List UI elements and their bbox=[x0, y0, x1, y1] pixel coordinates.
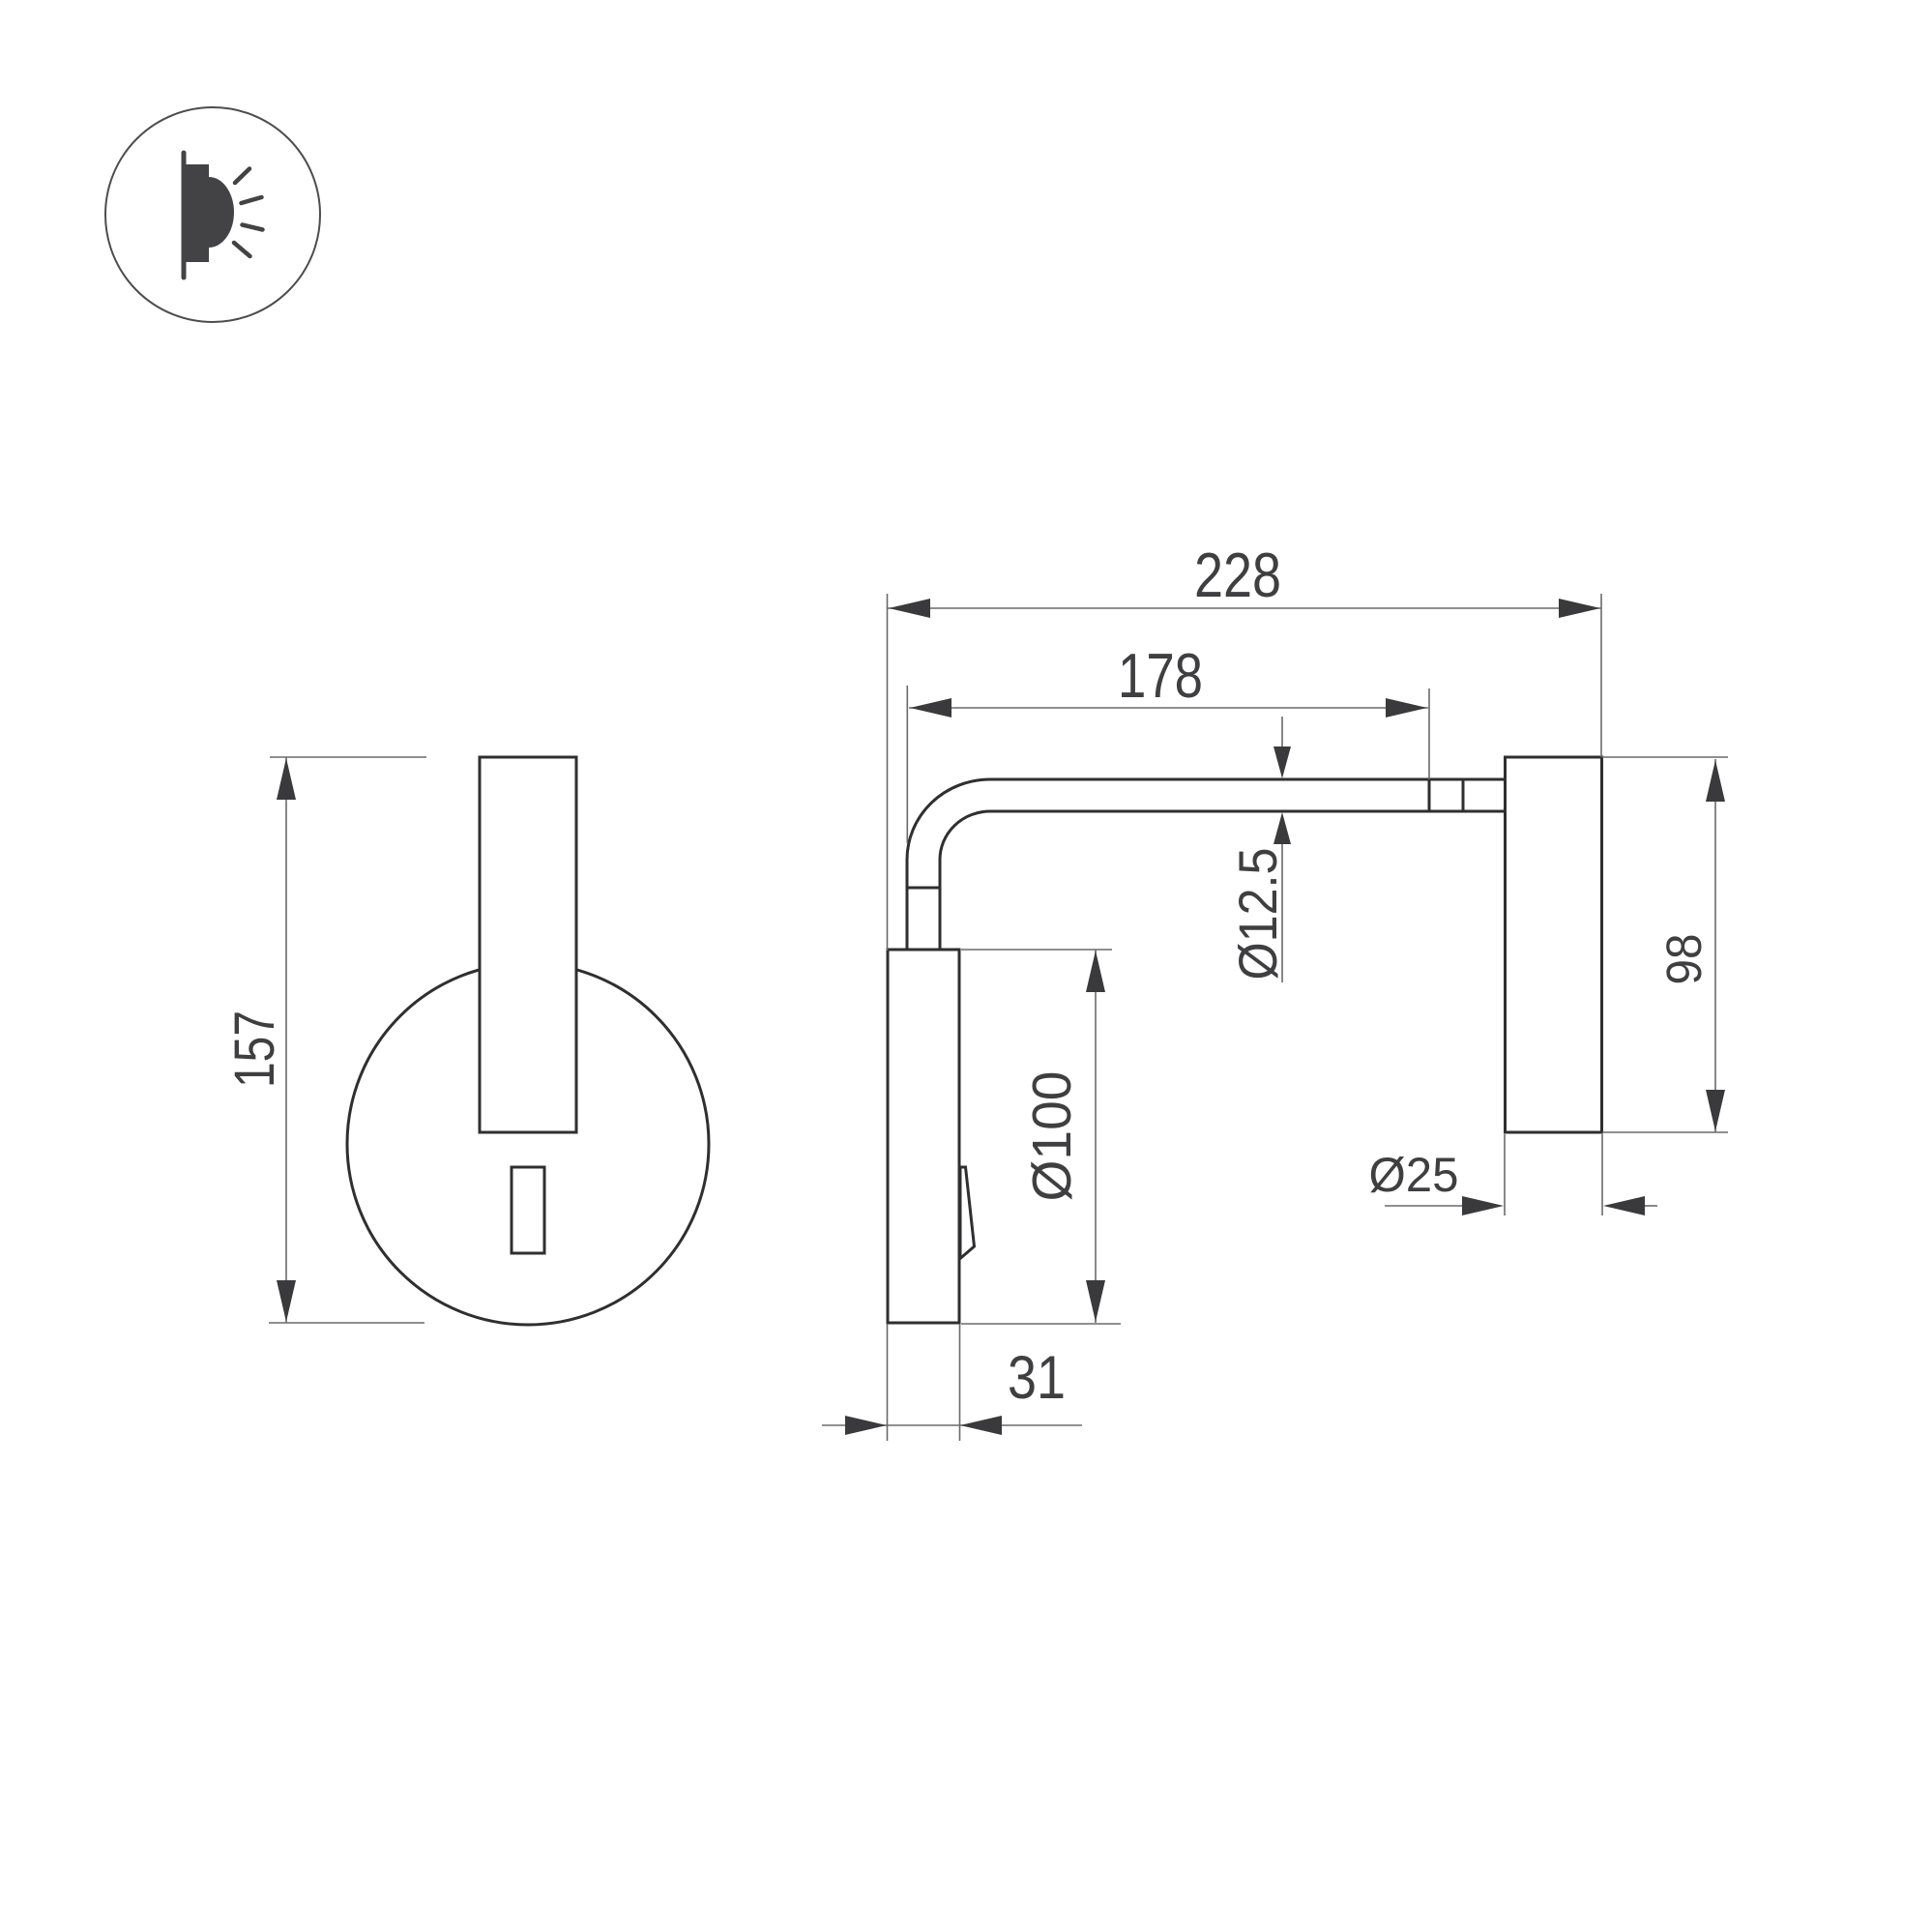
svg-text:98: 98 bbox=[1656, 934, 1712, 985]
svg-text:Ø12.5: Ø12.5 bbox=[1227, 848, 1288, 981]
svg-text:Ø100: Ø100 bbox=[1021, 1071, 1083, 1202]
svg-text:31: 31 bbox=[1008, 1344, 1066, 1412]
svg-text:Ø25: Ø25 bbox=[1369, 1148, 1459, 1202]
svg-text:157: 157 bbox=[223, 1010, 286, 1088]
svg-text:228: 228 bbox=[1194, 540, 1281, 610]
svg-text:178: 178 bbox=[1118, 640, 1203, 711]
